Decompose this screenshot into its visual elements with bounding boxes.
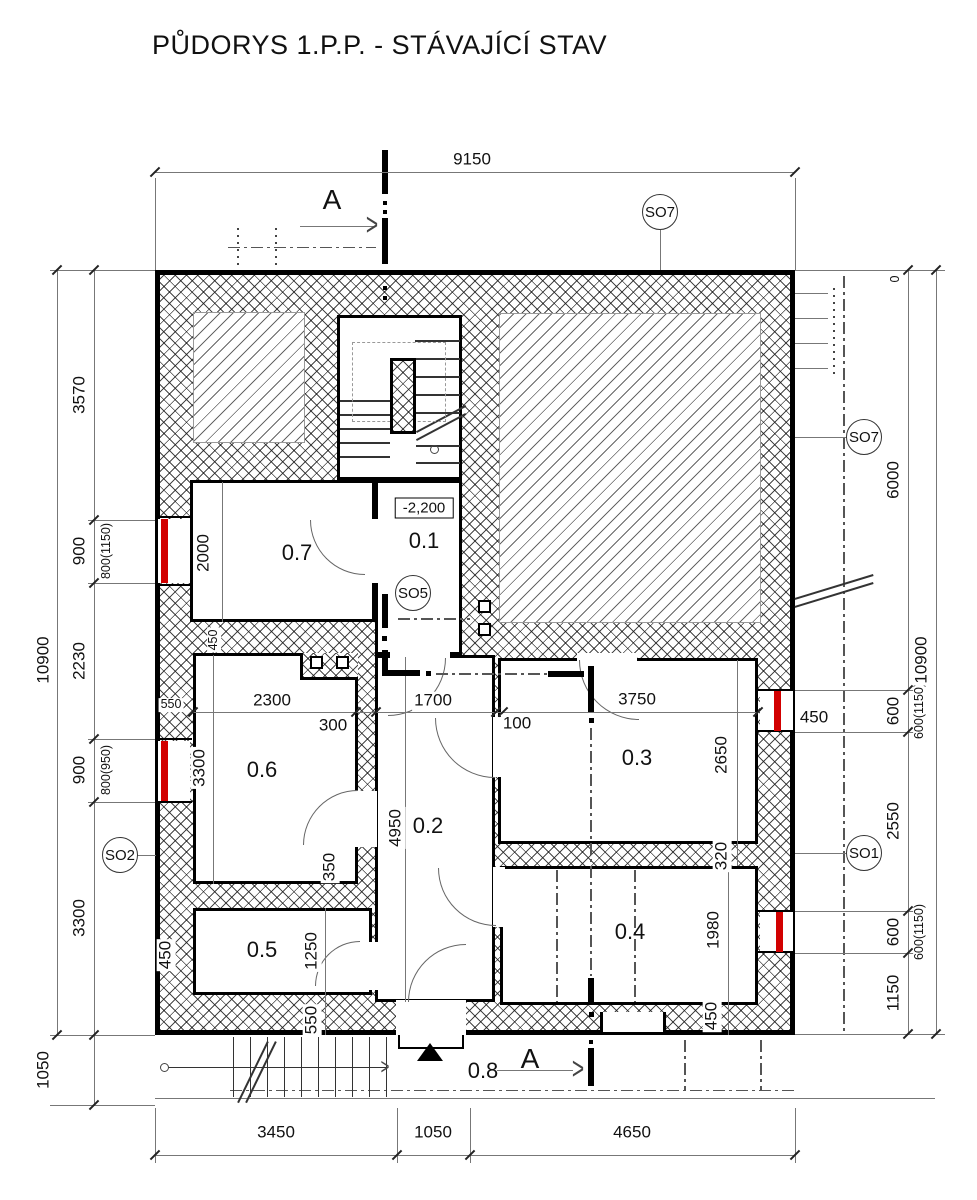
- drawing-line: [795, 368, 828, 369]
- drawing-line: [50, 270, 155, 271]
- dim-i-3300: 3300: [191, 747, 210, 789]
- dim-left-3300: 3300: [71, 897, 90, 939]
- drawing-line: [795, 732, 915, 733]
- dim-i-100: 100: [501, 715, 533, 734]
- dim-right-600a: 600: [885, 695, 904, 727]
- room-label-0-8: 0.8: [468, 1058, 499, 1084]
- drawing-line: [908, 270, 909, 1034]
- entrance-marker-icon: [417, 1043, 443, 1061]
- drawing-line: [843, 276, 845, 1032]
- drawing-line: [774, 691, 781, 731]
- drawing-line: [382, 636, 387, 641]
- section-arrow-top-icon: >: [366, 208, 378, 244]
- drawing-line: [237, 1041, 268, 1103]
- column: [478, 623, 491, 636]
- dim-i-320: 320: [713, 840, 732, 872]
- dim-left-900b: 900: [71, 754, 90, 786]
- so7-top-leader: [660, 230, 661, 270]
- drawing-line: [155, 172, 795, 173]
- drawing-line: [588, 666, 594, 712]
- drawing-line: [795, 690, 915, 691]
- room-label-0-1: 0.1: [409, 528, 440, 554]
- drawing-line: [158, 738, 192, 740]
- dim-left-10900: 10900: [35, 634, 54, 685]
- drawing-line: [416, 462, 460, 464]
- dim-bottom-3450: 3450: [255, 1124, 297, 1143]
- drawing-line: [588, 978, 594, 1004]
- dim-left-900a-sub: 800(1150): [100, 521, 114, 581]
- drawing-line: [382, 650, 388, 672]
- section-arrow-bottom-icon: >: [572, 1052, 584, 1088]
- page-title: PŮDORYS 1.P.P. - STÁVAJÍCÍ STAV: [152, 30, 607, 61]
- level-marker: -2,200: [395, 498, 454, 519]
- stair-newel-wall: [390, 358, 416, 434]
- drawing-line: [193, 712, 758, 713]
- drawing-line: [158, 516, 192, 518]
- drawing-line: [88, 583, 155, 584]
- room-label-0-2: 0.2: [413, 813, 444, 839]
- drawing-line: [398, 618, 470, 620]
- dim-i-300: 300: [317, 717, 349, 736]
- drawing-line: >: [381, 1054, 390, 1080]
- drawing-line: [161, 741, 168, 801]
- dim-i-1700: 1700: [412, 692, 454, 711]
- drawing-line: [430, 445, 439, 454]
- drawing-line: [436, 673, 548, 675]
- drawing-line: [275, 228, 277, 270]
- drawing-line: [160, 1063, 169, 1072]
- drawing-line: [168, 1067, 386, 1068]
- drawing-line: [50, 1035, 155, 1036]
- room-0-6-wall-notch: [300, 653, 358, 680]
- drawing-line: [213, 655, 214, 884]
- drawing-line: [556, 870, 558, 1002]
- drawing-line: [589, 1040, 593, 1044]
- dim-i-2650: 2650: [713, 734, 732, 776]
- drawing-line: [776, 912, 783, 952]
- room-label-0-4: 0.4: [615, 919, 646, 945]
- marker-so7-right: SO7: [846, 419, 882, 455]
- drawing-line: [383, 286, 387, 290]
- drawing-line: [795, 293, 828, 294]
- drawing-line: [222, 482, 223, 622]
- drawing-line: [936, 270, 937, 1034]
- drawing-line: [589, 718, 594, 723]
- drawing-line: [50, 1105, 155, 1106]
- room-label-0-3: 0.3: [622, 745, 653, 771]
- drawing-line: [795, 318, 828, 319]
- drawing-line: [795, 270, 945, 271]
- drawing-line: [795, 178, 796, 270]
- drawing-line: [396, 1000, 466, 1037]
- dim-i-450r: 450: [703, 1000, 722, 1032]
- section-label-top: A: [323, 184, 342, 216]
- drawing-line: [760, 1040, 762, 1090]
- dim-right-6000: 6000: [885, 459, 904, 501]
- drawing-line: [426, 671, 431, 676]
- drawing-line: [367, 519, 383, 583]
- floor-plan-sheet: PŮDORYS 1.P.P. - STÁVAJÍCÍ STAV: [0, 0, 977, 1200]
- marker-so7-top: SO7: [642, 194, 678, 230]
- drawing-line: [355, 791, 377, 847]
- dim-right-0: 0: [889, 274, 903, 285]
- room-label-0-5: 0.5: [247, 937, 278, 963]
- drawing-line: [158, 584, 192, 586]
- dim-i-1980: 1980: [705, 909, 724, 951]
- drawing-line: [300, 226, 374, 227]
- drawing-line: [88, 802, 155, 803]
- drawing-line: [382, 218, 388, 264]
- drawing-line: [728, 866, 729, 1035]
- dim-i-450tl: 450: [207, 628, 221, 653]
- dim-i-450bl: 450: [157, 939, 176, 971]
- drawing-line: [548, 671, 584, 677]
- drawing-line: [340, 442, 390, 444]
- dim-bottom-1050: 1050: [412, 1124, 454, 1143]
- marker-so1: SO1: [846, 835, 882, 871]
- drawing-line: [382, 670, 420, 676]
- dim-i-1250: 1250: [303, 930, 322, 972]
- door-niche: [600, 1012, 666, 1035]
- column: [310, 656, 323, 669]
- drawing-line: [155, 178, 156, 270]
- dim-left-900b-sub: 800(950): [100, 743, 114, 797]
- section-label-bottom: A: [521, 1043, 540, 1075]
- drawing-line: [366, 942, 378, 990]
- room-label-0-6: 0.6: [247, 757, 278, 783]
- room-label-0-7: 0.7: [282, 540, 313, 566]
- drawing-line: [325, 908, 326, 1035]
- drawing-line: [795, 343, 828, 344]
- so2-leader: [136, 855, 156, 856]
- drawing-line: [230, 1090, 795, 1091]
- drawing-line: [88, 520, 155, 521]
- drawing-line: [340, 428, 390, 430]
- drawing-line: [155, 1155, 795, 1156]
- drawing-line: [590, 728, 592, 976]
- unexcavated-zone-topright: [499, 313, 761, 623]
- dim-left-1050: 1050: [35, 1049, 54, 1091]
- dim-i-2300: 2300: [251, 692, 293, 711]
- drawing-line: [684, 1040, 686, 1090]
- drawing-line: [340, 456, 390, 458]
- dim-i-550l: 550: [159, 698, 184, 712]
- drawing-line: [795, 911, 915, 912]
- dim-left-2230: 2230: [71, 640, 90, 682]
- drawing-line: [228, 247, 376, 248]
- drawing-line: [237, 228, 239, 270]
- marker-so2: SO2: [102, 837, 138, 873]
- dim-right-450: 450: [798, 709, 830, 728]
- dim-i-550b: 550: [303, 1004, 322, 1036]
- drawing-line: [383, 210, 387, 214]
- drawing-line: [795, 1034, 945, 1035]
- drawing-line: [94, 270, 95, 1105]
- dim-i-350: 350: [321, 851, 340, 883]
- marker-so5: SO5: [395, 575, 431, 611]
- drawing-line: [737, 660, 738, 866]
- so1-leader: [795, 853, 847, 854]
- drawing-line: [833, 288, 835, 376]
- unexcavated-zone-topleft: [193, 312, 305, 443]
- dim-left-900a: 900: [71, 535, 90, 567]
- drawing-line: [155, 1098, 935, 1099]
- drawing-line: [383, 201, 387, 205]
- dim-right-10900: 10900: [913, 634, 932, 685]
- dim-i-4950: 4950: [387, 807, 406, 849]
- dim-right-1150: 1150: [885, 973, 904, 1014]
- dim-i-3750: 3750: [616, 691, 658, 710]
- column: [336, 656, 349, 669]
- drawing-line: [57, 270, 58, 1035]
- drawing-line: [589, 1012, 594, 1017]
- drawing-line: [383, 296, 387, 300]
- drawing-line: [88, 739, 155, 740]
- dim-bottom-4650: 4650: [611, 1124, 653, 1143]
- dim-right-600b-sub: 600(1150): [913, 902, 927, 962]
- drawing-line: [382, 594, 388, 628]
- dim-right-600b: 600: [885, 916, 904, 948]
- dim-right-600a-sub: 600(1150): [913, 681, 927, 741]
- drawing-line: [588, 1048, 594, 1086]
- so7-right-leader: [795, 437, 847, 438]
- drawing-line: [161, 519, 168, 583]
- column: [478, 600, 491, 613]
- drawing-line: [158, 801, 192, 803]
- dim-i-2000: 2000: [195, 532, 214, 574]
- drawing-line: [795, 953, 915, 954]
- dim-top-9150: 9150: [451, 151, 493, 170]
- dim-left-3570: 3570: [71, 374, 90, 416]
- dim-right-2550: 2550: [885, 800, 904, 842]
